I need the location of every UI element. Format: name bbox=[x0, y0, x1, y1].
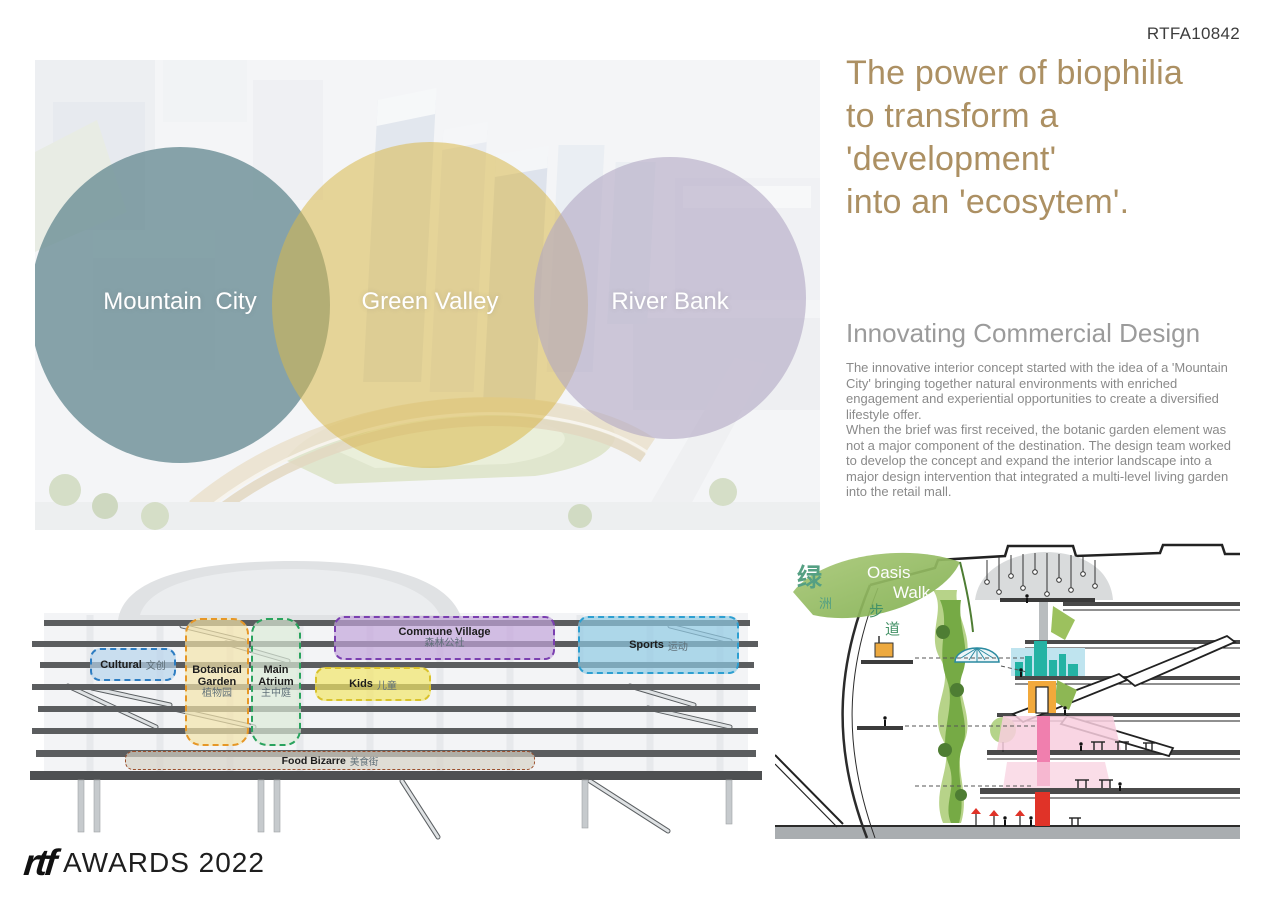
awards-label: AWARDS 2022 bbox=[63, 847, 265, 879]
article-paragraph-1: The innovative interior concept started … bbox=[846, 360, 1244, 422]
zone-botanical-garden: Botanical Garden 植物园 bbox=[185, 618, 249, 746]
zoning-diagram: Cultural 文创 Botanical Garden 植物园 Main At… bbox=[30, 555, 762, 845]
article-paragraph-2: When the brief was first received, the b… bbox=[846, 422, 1244, 500]
headline-line: 'development' bbox=[846, 138, 1183, 181]
zone-kids: Kids 儿童 bbox=[315, 667, 431, 701]
green-valley-label: Green Valley bbox=[320, 288, 540, 316]
oasis-logo-zh-3: 步 bbox=[869, 603, 884, 620]
oasis-logo-zh-1: 绿 bbox=[797, 563, 823, 592]
headline: The power of biophilia to transform a 'd… bbox=[846, 52, 1183, 224]
headline-line: to transform a bbox=[846, 95, 1183, 138]
zone-main-atrium: Main Atrium 主中庭 bbox=[251, 618, 301, 746]
oasis-walk-sketch: Oasis Walk 绿 洲 步 道 bbox=[775, 540, 1240, 842]
headline-line: into an 'ecosytem'. bbox=[846, 181, 1183, 224]
project-code: RTFA10842 bbox=[1147, 24, 1240, 44]
zone-commune-village: Commune Village 森林公社 bbox=[334, 616, 555, 660]
rtf-logo: rtf bbox=[22, 845, 56, 881]
zone-food-bizarre: Food Bizarre 美食街 bbox=[125, 751, 535, 770]
zone-sports: Sports 运动 bbox=[578, 616, 739, 674]
footer: rtf AWARDS 2022 bbox=[24, 845, 265, 881]
section-title: Innovating Commercial Design bbox=[846, 318, 1200, 349]
zone-cultural: Cultural 文创 bbox=[90, 648, 176, 681]
oasis-logo-text-2: Walk bbox=[893, 583, 931, 602]
oasis-logo-zh-4: 道 bbox=[885, 621, 900, 638]
river-bank-label: River Bank bbox=[560, 288, 780, 316]
oasis-logo-zh-2: 洲 bbox=[819, 596, 832, 611]
oasis-logo-text-1: Oasis bbox=[867, 563, 910, 582]
hero-render: Mountain City Green Valley River Bank bbox=[35, 60, 820, 530]
mountain-city-label: Mountain City bbox=[70, 288, 290, 316]
headline-line: The power of biophilia bbox=[846, 52, 1183, 95]
